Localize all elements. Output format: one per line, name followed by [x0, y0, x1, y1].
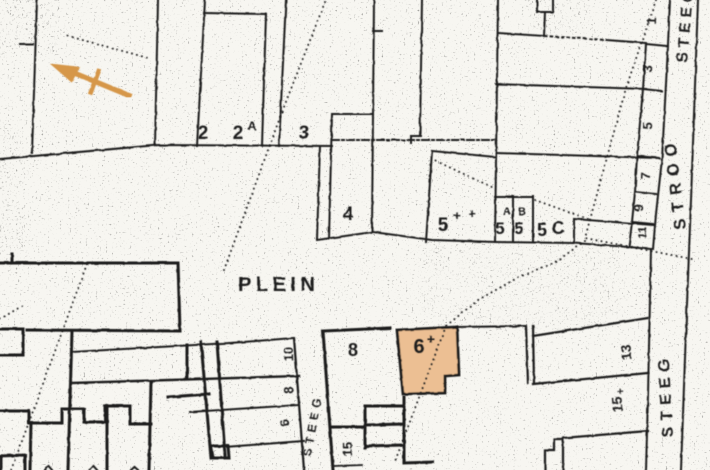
svg-text:C: C: [552, 218, 565, 238]
svg-text:10: 10: [281, 347, 296, 362]
svg-text:5: 5: [640, 122, 655, 130]
svg-text:4: 4: [343, 204, 354, 225]
svg-text:A: A: [248, 119, 257, 133]
svg-text:6: 6: [277, 419, 292, 427]
svg-text:3: 3: [640, 65, 655, 73]
svg-text:5: 5: [438, 215, 449, 236]
svg-text:+: +: [453, 208, 461, 223]
svg-text:5: 5: [495, 219, 504, 238]
svg-text:6: 6: [413, 336, 424, 358]
svg-text:3: 3: [299, 123, 310, 144]
svg-text:1: 1: [644, 17, 659, 25]
svg-text:9: 9: [631, 204, 646, 212]
svg-text:A: A: [503, 206, 511, 218]
svg-text:2: 2: [233, 123, 244, 144]
svg-text:PLEIN: PLEIN: [238, 274, 319, 296]
svg-text:7: 7: [638, 172, 653, 180]
svg-text:8: 8: [281, 386, 296, 394]
svg-text:+: +: [427, 331, 435, 347]
svg-text:13: 13: [617, 344, 634, 361]
svg-text:5: 5: [514, 219, 523, 238]
svg-text:+: +: [468, 206, 476, 221]
svg-text:5: 5: [537, 220, 547, 240]
svg-text:2: 2: [198, 123, 209, 144]
svg-text:15: 15: [608, 396, 625, 413]
svg-text:8: 8: [348, 340, 358, 360]
svg-text:B: B: [518, 206, 526, 218]
svg-text:15: 15: [340, 442, 355, 457]
svg-text:11: 11: [637, 227, 649, 239]
svg-text:+: +: [615, 388, 628, 395]
